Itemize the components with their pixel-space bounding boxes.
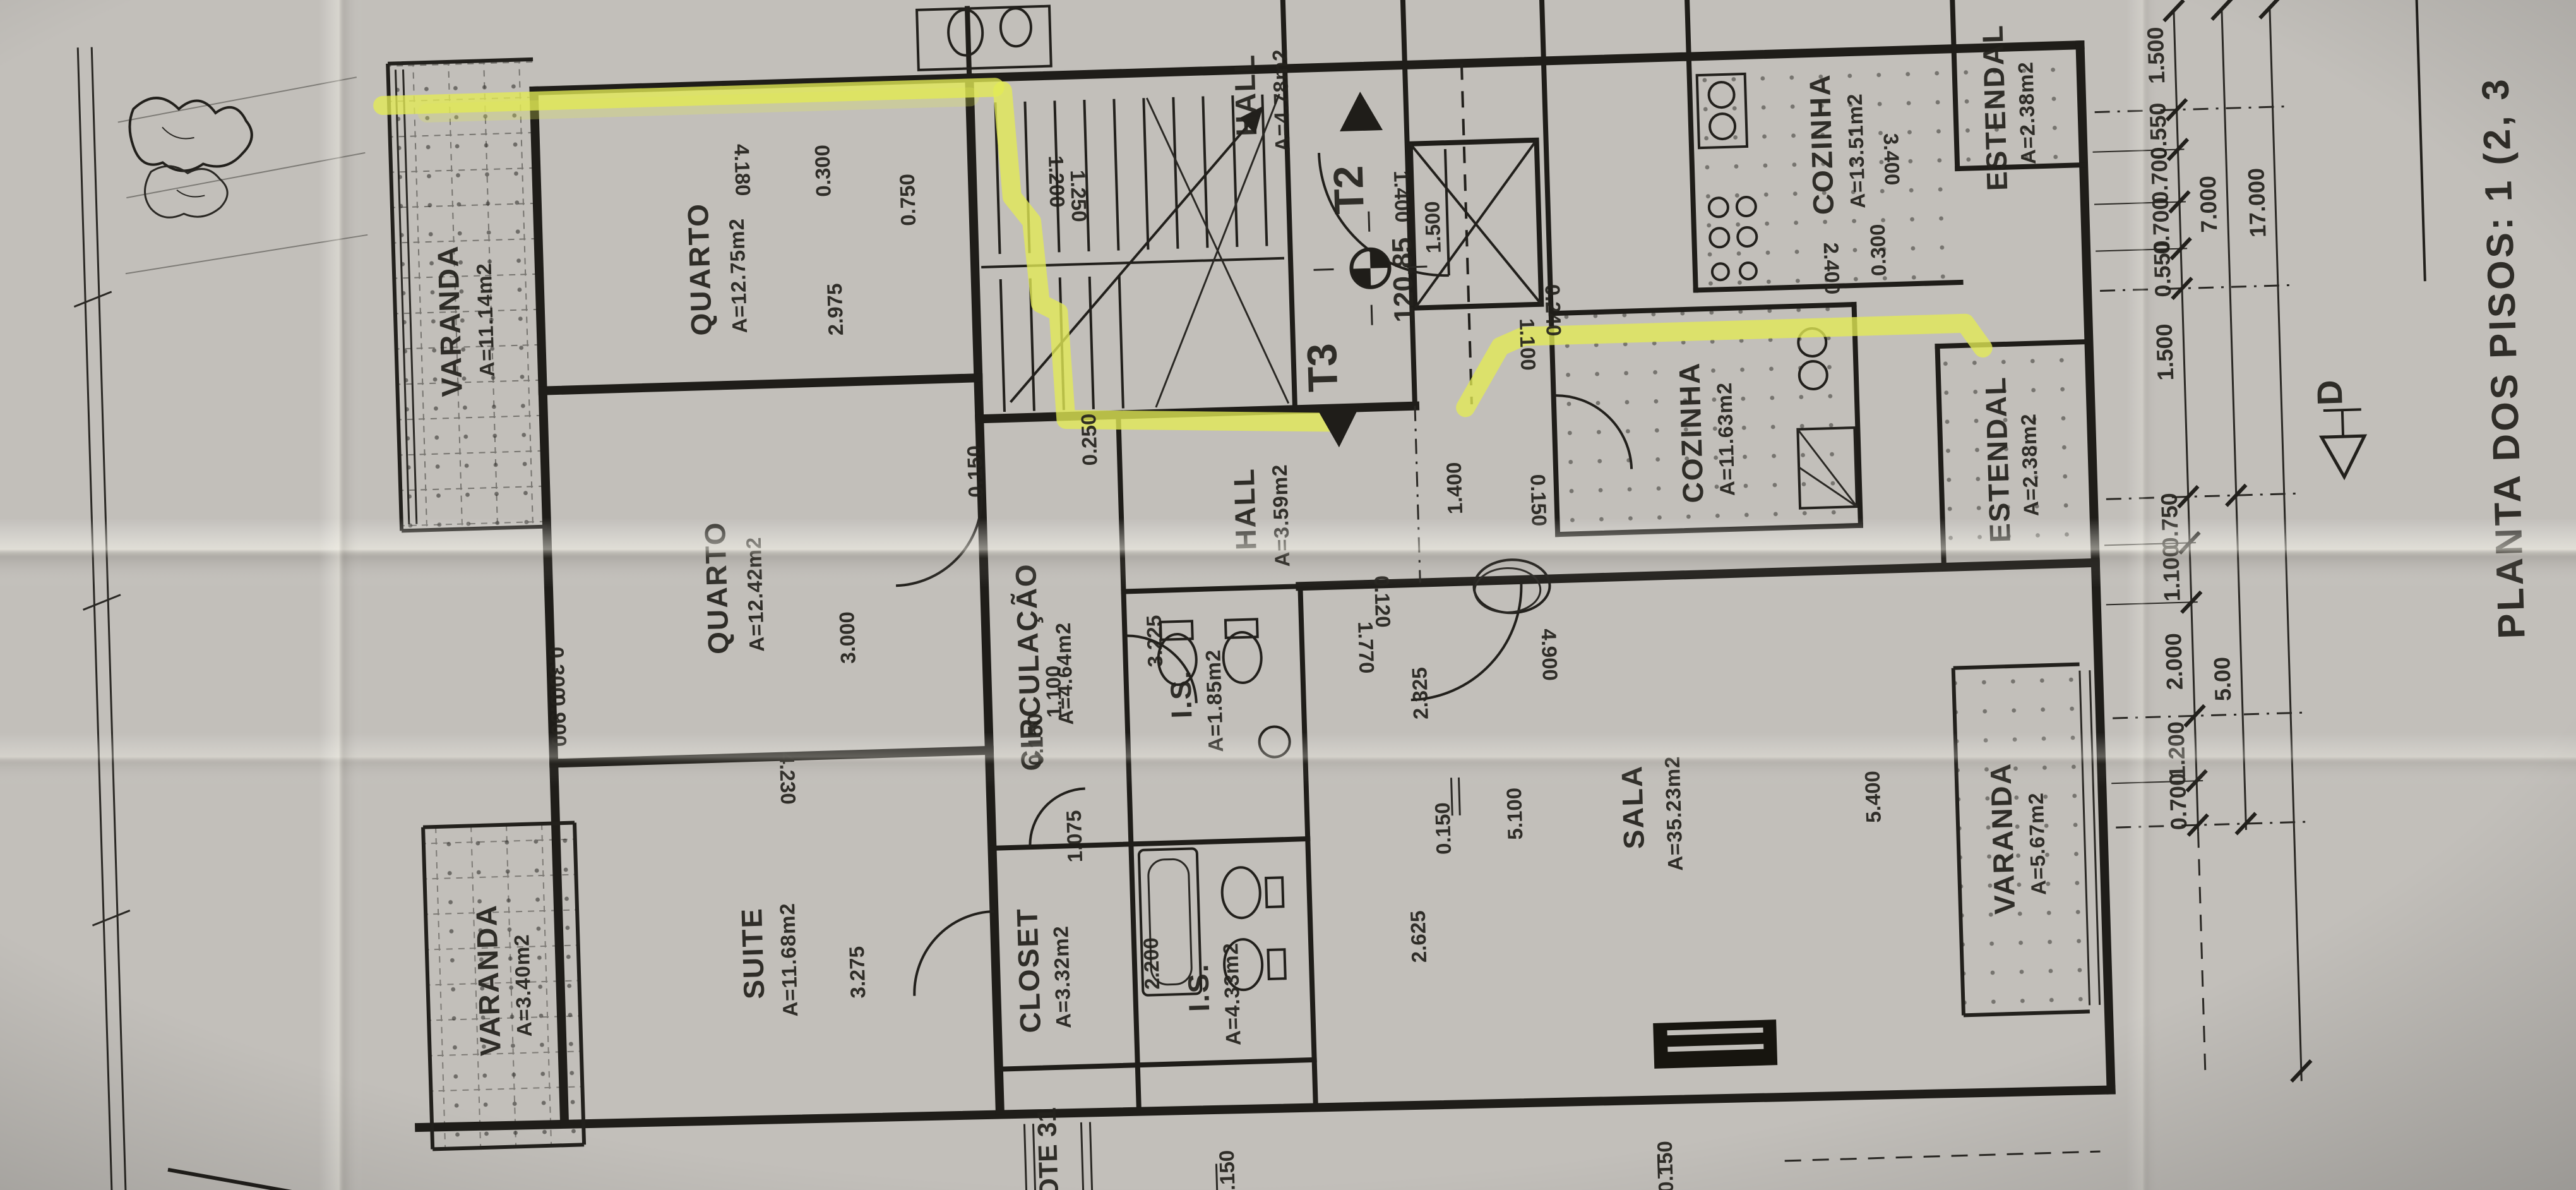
photo-vignette bbox=[0, 0, 2576, 1190]
floorplan-photo: T2 T3 120.85 VARANDA A=11.14m2 QUARTO A=… bbox=[0, 0, 2576, 1190]
